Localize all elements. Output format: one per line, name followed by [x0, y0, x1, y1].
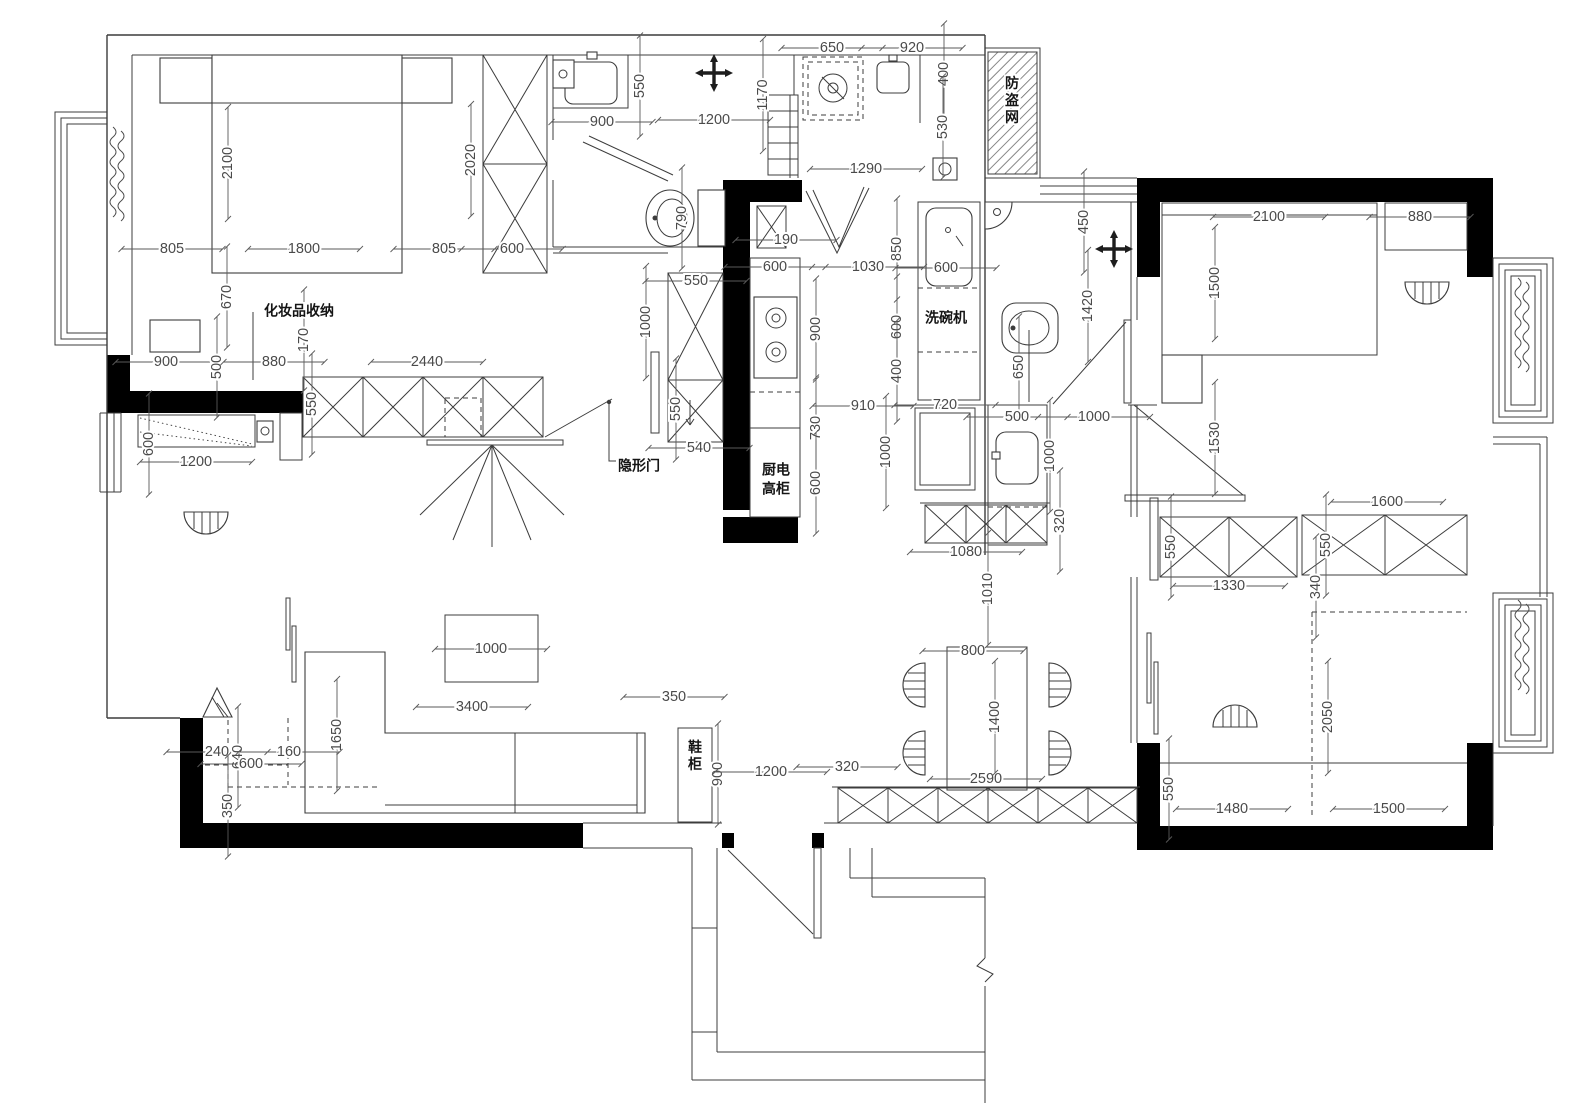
toilet-icon — [1002, 303, 1058, 402]
nightstand — [402, 58, 452, 103]
annotation-label: 洗碗机 — [925, 310, 967, 326]
svg-text:2050: 2050 — [1320, 701, 1336, 733]
dimension-label: 1000 — [1042, 397, 1058, 515]
dimension-label: 900 — [549, 114, 656, 130]
svg-text:350: 350 — [220, 794, 236, 818]
dimension-label: 1000 — [878, 393, 894, 511]
svg-text:320: 320 — [1052, 509, 1068, 533]
svg-text:800: 800 — [961, 643, 985, 659]
tv-icon — [286, 598, 290, 650]
svg-text:910: 910 — [851, 398, 875, 414]
dimension-label: 1500 — [1207, 224, 1223, 342]
annotation-label: 鞋柜 — [688, 739, 702, 772]
svg-text:550: 550 — [304, 392, 320, 416]
floor-plan-page: 2100202080518008056006701709005008802440… — [0, 0, 1582, 1103]
nightstand — [150, 320, 200, 352]
svg-text:900: 900 — [154, 354, 178, 370]
svg-text:1000: 1000 — [1078, 409, 1110, 425]
sideboard-cabinet — [838, 788, 1137, 823]
dimension-label: 1030 — [809, 259, 927, 275]
svg-text:1200: 1200 — [180, 454, 212, 470]
svg-text:550: 550 — [1163, 535, 1179, 559]
chair-icon — [903, 731, 925, 775]
annotation-label: 高柜 — [762, 481, 790, 497]
svg-text:1420: 1420 — [1080, 290, 1096, 322]
stove-icon — [754, 297, 797, 378]
dimension-label: 550 — [304, 351, 320, 458]
svg-text:920: 920 — [900, 40, 924, 56]
sink-icon — [996, 432, 1038, 484]
svg-text:3400: 3400 — [456, 699, 488, 715]
nightstand — [160, 58, 212, 103]
svg-text:2100: 2100 — [1253, 209, 1285, 225]
dimension-label: 600 — [893, 260, 1000, 276]
svg-text:1000: 1000 — [638, 306, 654, 338]
chair-icon — [1049, 663, 1071, 707]
sink-icon — [877, 62, 909, 93]
svg-text:650: 650 — [1011, 355, 1027, 379]
svg-text:805: 805 — [160, 241, 184, 257]
folding-door-icon — [806, 187, 869, 253]
dimension-label: 880 — [221, 354, 328, 370]
corridor-closet — [651, 273, 723, 442]
shower-icon — [1095, 230, 1133, 268]
svg-text:1010: 1010 — [980, 573, 996, 605]
svg-text:880: 880 — [1408, 209, 1432, 225]
sofa-icon — [305, 652, 645, 813]
chair-icon — [903, 663, 925, 707]
svg-text:500: 500 — [1005, 409, 1029, 425]
chair-icon — [184, 512, 228, 534]
dimension-label: 1010 — [980, 530, 996, 648]
dimension-label: 2440 — [368, 354, 486, 370]
bed — [1162, 203, 1377, 355]
dimension-label: 550 — [632, 33, 648, 140]
svg-text:1330: 1330 — [1213, 578, 1245, 594]
dimension-label: 1290 — [807, 161, 925, 177]
dimension-label: 920 — [859, 40, 966, 56]
dimension-label: 320 — [1052, 468, 1068, 575]
svg-text:550: 550 — [1318, 533, 1334, 557]
svg-text:530: 530 — [935, 115, 951, 139]
svg-text:1200: 1200 — [698, 112, 730, 128]
svg-text:340: 340 — [1308, 575, 1324, 599]
svg-text:1170: 1170 — [755, 79, 771, 110]
dimension-label: 910 — [810, 398, 917, 414]
dimension-label: 1400 — [987, 658, 1003, 776]
dimension-label: 1200 — [655, 112, 773, 128]
svg-text:400: 400 — [889, 359, 905, 383]
svg-text:1030: 1030 — [852, 259, 884, 275]
svg-text:900: 900 — [808, 317, 824, 341]
annotation-label: 隐形门 — [618, 458, 660, 474]
svg-text:160: 160 — [277, 744, 301, 760]
svg-text:900: 900 — [710, 762, 726, 786]
hall-cabinets — [303, 377, 616, 547]
annotation-label: 防盗网 — [1005, 75, 1020, 125]
dimension-label: 3400 — [413, 699, 531, 715]
dimension-label: 2100 — [1210, 209, 1328, 225]
svg-text:550: 550 — [1161, 777, 1177, 801]
dimension-label: 800 — [920, 643, 1027, 659]
svg-text:720: 720 — [933, 397, 957, 413]
dimension-label: 350 — [621, 689, 728, 705]
svg-text:600: 600 — [934, 260, 958, 276]
svg-text:880: 880 — [262, 354, 286, 370]
dimension-label: 1500 — [1330, 801, 1448, 817]
svg-text:550: 550 — [632, 74, 648, 98]
svg-text:1500: 1500 — [1207, 267, 1223, 299]
dimension-label: 2020 — [463, 101, 479, 219]
svg-text:600: 600 — [500, 241, 524, 257]
dimension-label: 400 — [936, 21, 952, 128]
bedroom-2 — [1125, 203, 1467, 580]
door-leaf — [814, 848, 821, 938]
dimension-label: 600 — [459, 241, 566, 257]
dimension-label: 1420 — [1080, 247, 1096, 365]
vanity-cabinet — [988, 405, 1047, 545]
svg-text:850: 850 — [889, 237, 905, 261]
svg-text:550: 550 — [684, 273, 708, 289]
svg-text:600: 600 — [763, 259, 787, 275]
bedroom-3 — [1147, 612, 1467, 815]
svg-text:670: 670 — [219, 285, 235, 309]
dimension-label: 600 — [808, 430, 824, 537]
annotation-label: 化妆品收纳 — [264, 303, 334, 319]
svg-text:790: 790 — [674, 206, 690, 230]
svg-text:600: 600 — [141, 432, 157, 456]
dimension-label: 1600 — [1328, 494, 1446, 510]
svg-text:500: 500 — [209, 355, 225, 379]
dimension-label: 1330 — [1170, 578, 1288, 594]
floor-plan-svg: 2100202080518008056006701709005008802440… — [0, 0, 1582, 1103]
dimension-label: 2050 — [1320, 658, 1336, 776]
svg-text:805: 805 — [432, 241, 456, 257]
dimension-label: 720 — [892, 397, 999, 413]
svg-text:2100: 2100 — [220, 147, 236, 179]
svg-text:1000: 1000 — [878, 436, 894, 468]
svg-text:1530: 1530 — [1207, 422, 1223, 454]
svg-text:550: 550 — [668, 397, 684, 421]
svg-text:2440: 2440 — [411, 354, 443, 370]
svg-text:350: 350 — [662, 689, 686, 705]
entry-dining — [678, 647, 1137, 938]
svg-text:650: 650 — [820, 40, 844, 56]
second-bathroom — [985, 202, 1133, 545]
floor-drain-icon — [933, 158, 957, 180]
dimension-label: 1080 — [907, 544, 1025, 560]
svg-text:600: 600 — [808, 471, 824, 495]
dimension-label: 1200 — [712, 764, 830, 780]
chair-icon — [1213, 705, 1257, 727]
svg-text:1600: 1600 — [1371, 494, 1403, 510]
svg-text:190: 190 — [774, 232, 798, 248]
chair-icon — [1049, 731, 1071, 775]
dimension-label: 1530 — [1207, 379, 1223, 497]
svg-text:1480: 1480 — [1216, 801, 1248, 817]
dimension-label: 805 — [119, 241, 226, 257]
svg-text:1650: 1650 — [329, 719, 345, 751]
dimension-label: 450 — [1076, 169, 1092, 276]
svg-text:1400: 1400 — [987, 701, 1003, 733]
dimension-label: 880 — [1367, 209, 1474, 225]
floor-lamp-icon — [203, 688, 232, 717]
svg-text:900: 900 — [590, 114, 614, 130]
shower-icon — [695, 54, 733, 92]
door-swing — [728, 850, 813, 934]
dimension-label: 900 — [808, 276, 824, 383]
living-room — [203, 598, 645, 820]
chair-icon — [1405, 282, 1449, 304]
annotation-label: 厨电 — [762, 462, 790, 478]
svg-text:540: 540 — [687, 440, 711, 456]
door-leaf — [1124, 320, 1131, 403]
svg-text:1290: 1290 — [850, 161, 882, 177]
dimension-label: 1000 — [1035, 409, 1153, 425]
dimension-label: 790 — [674, 165, 690, 272]
refrigerator-icon — [915, 408, 975, 490]
dimension-label: 550 — [668, 356, 684, 463]
svg-text:170: 170 — [296, 328, 312, 352]
svg-text:2020: 2020 — [463, 144, 479, 176]
nightstand — [1162, 355, 1202, 403]
svg-text:450: 450 — [1076, 210, 1092, 234]
washing-machine-icon — [803, 57, 863, 120]
dimension-label: 1480 — [1173, 801, 1291, 817]
svg-text:320: 320 — [835, 759, 859, 775]
svg-text:1000: 1000 — [1042, 440, 1058, 472]
svg-text:400: 400 — [936, 62, 952, 86]
dimension-label: 1000 — [432, 641, 550, 657]
svg-text:2590: 2590 — [970, 771, 1002, 787]
svg-text:1000: 1000 — [475, 641, 507, 657]
svg-text:1200: 1200 — [755, 764, 787, 780]
svg-text:1800: 1800 — [288, 241, 320, 257]
dimension-label: 550 — [1163, 494, 1179, 601]
svg-text:600: 600 — [239, 756, 263, 772]
svg-text:1500: 1500 — [1373, 801, 1405, 817]
svg-text:1080: 1080 — [950, 544, 982, 560]
